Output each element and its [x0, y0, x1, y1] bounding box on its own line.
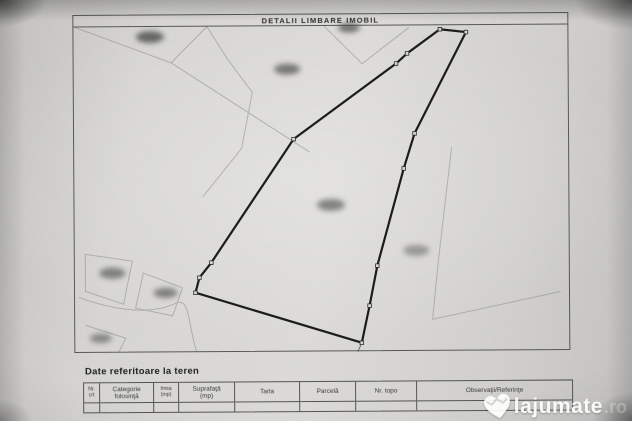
table-cell-empty — [417, 400, 572, 410]
col-header-line: folosinţă — [115, 393, 139, 400]
boundary-point-marker — [402, 167, 406, 171]
scanned-cadastral-document-photo: DETALII LIMBARE IMOBIL Date referitoare … — [0, 0, 632, 421]
boundary-point-marker — [292, 137, 296, 141]
table-cell-empty — [356, 401, 417, 410]
redacted-label-smudge — [317, 199, 345, 211]
table-cell-empty — [300, 402, 356, 411]
col-header-observatii-referinte: Observaţii/Referinţe — [417, 380, 572, 401]
boundary-point-marker — [438, 27, 442, 31]
boundary-point-marker — [405, 52, 409, 56]
property-boundary-polygon — [194, 29, 468, 344]
boundary-point-marker — [413, 132, 417, 136]
col-header-categorie-folosinta: Categorie folosinţă — [100, 383, 154, 403]
boundary-point-marker — [198, 276, 202, 280]
redacted-label-smudge — [90, 334, 112, 343]
redacted-label-smudge — [99, 268, 125, 279]
col-header-nr-crt: Nr. crt — [84, 383, 100, 403]
col-header-line: Tarla — [260, 388, 274, 395]
redacted-label-smudge — [136, 31, 164, 43]
boundary-point-marker — [194, 291, 198, 295]
document-content: DETALII LIMBARE IMOBIL Date referitoare … — [0, 0, 632, 421]
table-cell-empty — [179, 402, 235, 411]
table-cell-empty — [154, 403, 179, 412]
terrain-section-heading: Date referitoare la teren — [85, 366, 199, 378]
cadastral-plan-map — [0, 0, 632, 421]
redacted-parcel-labels — [88, 23, 430, 343]
boundary-point-marker — [210, 261, 214, 265]
col-header-nr-topo: Nr. topo — [356, 381, 417, 401]
col-header-line: Observaţii/Referinţe — [466, 387, 523, 394]
col-header-line: crt — [89, 393, 95, 399]
redacted-label-smudge — [153, 288, 177, 298]
boundary-point-marker — [368, 304, 372, 308]
col-header-line: Nr. topo — [375, 388, 398, 395]
boundary-point-markers — [192, 27, 470, 345]
col-header-line: (mp) — [161, 392, 172, 398]
col-header-tarla: Tarla — [235, 382, 300, 402]
table-cell-empty — [235, 402, 300, 411]
table-cell-empty — [100, 403, 154, 412]
col-header-suprafata-mp: Suprafaţă (mp) — [179, 382, 235, 402]
col-header-imsa-mp: Imsa (mp) — [154, 383, 179, 403]
redacted-label-smudge — [403, 245, 429, 256]
col-header-line: (mp) — [200, 392, 213, 399]
boundary-point-marker — [464, 30, 468, 34]
terrain-table: Nr. crt Categorie folosinţă Imsa (mp) Su… — [83, 379, 573, 413]
redacted-label-smudge — [274, 64, 300, 75]
table-cell-empty — [84, 403, 100, 412]
col-header-line: Parcelă — [317, 388, 339, 395]
boundary-point-marker — [394, 62, 398, 66]
background-parcel-lines — [75, 25, 561, 353]
boundary-point-marker — [376, 264, 380, 268]
plan-frame — [73, 12, 570, 352]
boundary-point-marker — [360, 341, 364, 345]
col-header-parcela: Parcelă — [300, 382, 356, 402]
